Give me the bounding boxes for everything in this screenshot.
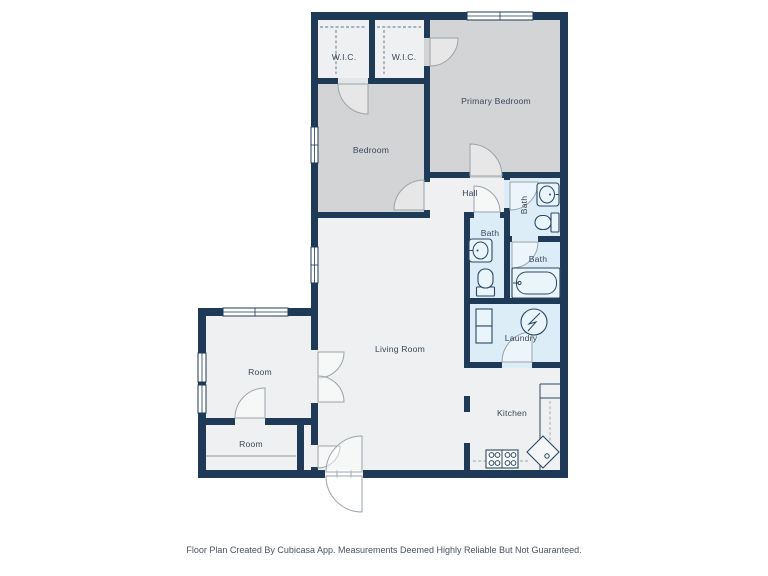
room-label-living-room: Living Room (375, 344, 425, 354)
room-label-wic-right: W.I.C. (392, 52, 417, 62)
room-label-primary-bedroom: Primary Bedroom (461, 96, 531, 106)
disclaimer-text: Floor Plan Created By Cubicasa App. Meas… (0, 545, 768, 555)
door-arc-icon (326, 476, 362, 512)
room-label-kitchen: Kitchen (497, 408, 527, 418)
wall-segment (560, 12, 568, 478)
room-label-bedroom: Bedroom (353, 145, 389, 155)
wall-segment (464, 396, 470, 412)
door-opening (504, 180, 510, 208)
sink-icon (537, 183, 559, 206)
wall-segment (311, 212, 430, 218)
room-label-room-upper: Room (248, 367, 272, 377)
wall-segment (297, 425, 304, 470)
door-opening (474, 212, 500, 218)
floor-plan-page: W.I.C. W.I.C. Primary Bedroom Bedroom Ha… (0, 0, 768, 576)
room-label-room-lower: Room (239, 439, 263, 449)
wall-segment (311, 78, 430, 84)
room-label-bath-ensuite: Bath (519, 196, 529, 214)
washer-icon (521, 309, 547, 335)
toilet-icon (477, 269, 495, 296)
room-primary-bedroom (424, 12, 568, 178)
door-opening (338, 78, 368, 84)
door-opening (424, 38, 430, 66)
door-opening (235, 418, 265, 425)
door-opening (311, 350, 318, 403)
room-label-wic-left: W.I.C. (332, 52, 357, 62)
wall-segment (464, 443, 470, 470)
wall-segment (464, 212, 470, 368)
sink-icon (469, 239, 492, 262)
room-label-bath-hall: Bath (481, 228, 499, 238)
floor-plan-drawing: W.I.C. W.I.C. Primary Bedroom Bedroom Ha… (0, 0, 768, 576)
room-label-hall: Hall (462, 188, 478, 198)
toilet-icon (535, 213, 559, 232)
wall-segment (369, 20, 375, 78)
door-opening (311, 445, 318, 467)
wall-segment (464, 298, 560, 304)
bathtub-icon (512, 268, 560, 298)
wall-segment (198, 470, 568, 478)
door-opening (502, 362, 532, 368)
room-label-bath-tub: Bath (529, 254, 547, 264)
cabinet-icon (476, 309, 492, 343)
door-opening (424, 182, 430, 210)
door-opening (512, 236, 538, 242)
stove-icon (486, 450, 518, 468)
room-label-laundry: Laundry (505, 333, 538, 343)
